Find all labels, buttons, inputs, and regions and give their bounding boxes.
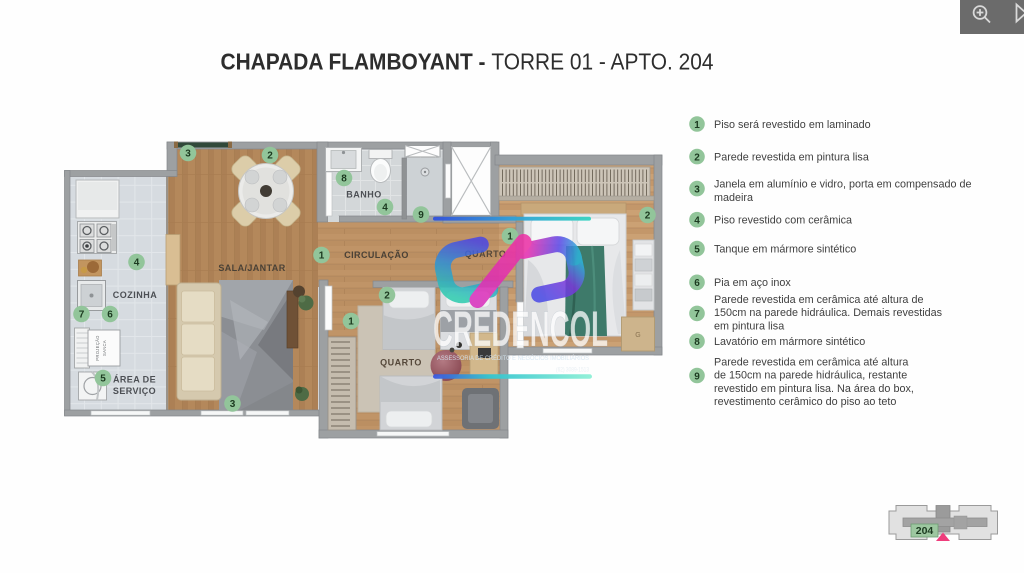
svg-text:5: 5 xyxy=(100,374,106,385)
svg-text:1: 1 xyxy=(348,317,354,328)
svg-text:CREDENCOL: CREDENCOL xyxy=(433,301,608,357)
svg-text:Parede revestida em cerâmica a: Parede revestida em cerâmica até altura xyxy=(714,357,908,369)
svg-text:3: 3 xyxy=(694,184,700,195)
svg-text:SALA/JANTAR: SALA/JANTAR xyxy=(218,263,285,273)
svg-text:2: 2 xyxy=(694,152,700,163)
svg-text:em pintura lisa: em pintura lisa xyxy=(714,320,784,332)
svg-text:QUARTO: QUARTO xyxy=(380,358,422,368)
svg-text:1: 1 xyxy=(319,251,325,262)
svg-text:Pia em aço inox: Pia em aço inox xyxy=(714,277,791,289)
svg-text:1: 1 xyxy=(507,232,513,243)
svg-text:4: 4 xyxy=(694,216,700,227)
svg-text:Parede revestida em pintura li: Parede revestida em pintura lisa xyxy=(714,151,869,163)
svg-text:3: 3 xyxy=(185,149,191,160)
svg-text:8: 8 xyxy=(694,337,700,348)
svg-text:9: 9 xyxy=(418,210,424,221)
svg-text:204: 204 xyxy=(916,525,934,537)
svg-text:revestido em pintura lisa. Na: revestido em pintura lisa. Na área do bo… xyxy=(714,383,914,395)
svg-text:Janela em alumínio e vidro, po: Janela em alumínio e vidro, porta em com… xyxy=(714,179,971,191)
svg-text:SANCA: SANCA xyxy=(102,340,107,356)
svg-text:ÁREA DE: ÁREA DE xyxy=(113,375,156,385)
svg-text:150cm na parede hidráulica. De: 150cm na parede hidráulica. Demais reves… xyxy=(714,307,943,319)
svg-text:1: 1 xyxy=(694,120,700,131)
svg-text:Piso será revestido em laminad: Piso será revestido em laminado xyxy=(714,119,871,131)
svg-text:COZINHA: COZINHA xyxy=(113,290,158,300)
svg-text:4: 4 xyxy=(134,258,140,269)
svg-text:6: 6 xyxy=(107,310,113,321)
svg-text:ASSESSORIA DE CRÉDITO E NEGÓCI: ASSESSORIA DE CRÉDITO E NEGÓCIOS IMOBILI… xyxy=(437,353,590,362)
svg-text:revestimento cerâmico do piso: revestimento cerâmico do piso ao teto xyxy=(714,396,896,408)
svg-text:BANHO: BANHO xyxy=(346,190,382,200)
svg-text:6: 6 xyxy=(694,278,700,289)
svg-text:7: 7 xyxy=(694,309,700,320)
svg-text:PROJEÇÃO: PROJEÇÃO xyxy=(95,335,100,361)
svg-text:3: 3 xyxy=(230,399,236,410)
svg-text:Lavatório em mármore sintético: Lavatório em mármore sintético xyxy=(714,336,865,348)
svg-text:7: 7 xyxy=(79,310,85,321)
svg-text:9: 9 xyxy=(694,371,700,382)
svg-text:SERVIÇO: SERVIÇO xyxy=(113,386,156,396)
svg-text:4: 4 xyxy=(382,203,388,214)
svg-text:5: 5 xyxy=(694,244,700,255)
svg-text:G: G xyxy=(635,332,640,339)
svg-text:2: 2 xyxy=(645,211,651,222)
svg-text:(62) 3089-1513: (62) 3089-1513 xyxy=(556,368,590,374)
svg-text:madeira: madeira xyxy=(714,192,753,204)
svg-text:CIRCULAÇÃO: CIRCULAÇÃO xyxy=(344,250,409,260)
svg-text:8: 8 xyxy=(341,174,347,185)
svg-text:2: 2 xyxy=(384,291,390,302)
svg-text:Tanque em mármore sintético: Tanque em mármore sintético xyxy=(714,243,856,255)
svg-text:CHAPADA FLAMBOYANT - TORRE 01: CHAPADA FLAMBOYANT - TORRE 01 - APTO. 20… xyxy=(221,49,714,75)
svg-text:2: 2 xyxy=(267,151,273,162)
svg-text:Piso revestido com cerâmica: Piso revestido com cerâmica xyxy=(714,215,852,227)
svg-text:de 150cm na parede hidráulica,: de 150cm na parede hidráulica, restante xyxy=(714,370,907,382)
svg-text:Parede revestida em cerâmica a: Parede revestida em cerâmica até altura … xyxy=(714,294,923,306)
